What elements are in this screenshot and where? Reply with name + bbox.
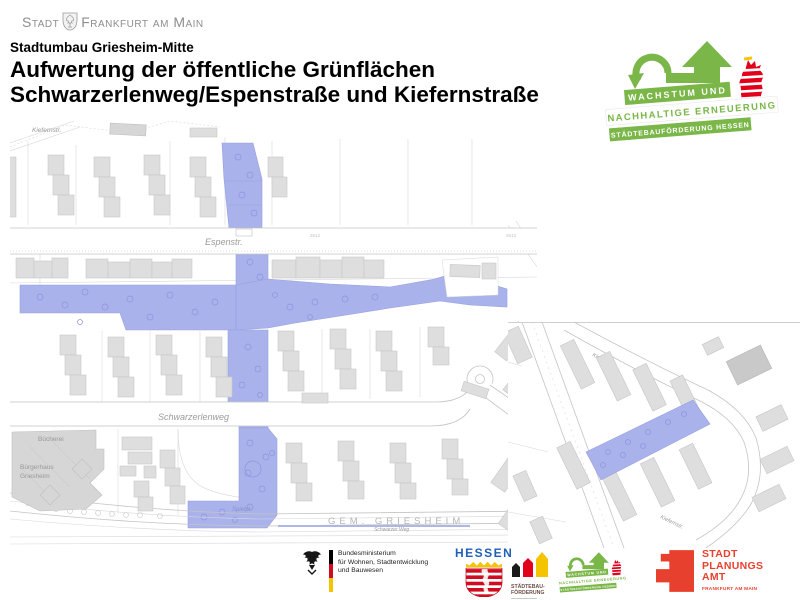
- program-logo-small: WACHSTUM UND NACHHALTIGE ERNEUERUNG STÄD…: [556, 549, 634, 599]
- subtitle: Stadtumbau Griesheim-Mitte: [10, 40, 194, 55]
- buergerhaus-label-1: Bürgerhaus: [20, 464, 54, 471]
- spa-line1: STADT: [702, 549, 763, 561]
- stadtplanungsamt-mark-icon: [656, 549, 694, 593]
- parcel-number-2612: 2612: [310, 233, 321, 238]
- schwarzerlenweg-label: Schwarzerlenweg: [158, 412, 229, 422]
- hessen-lion-icon: [734, 56, 768, 104]
- program-logo-graphic: WACHSTUM UND NACHHALTIGE ERNEUERUNG STÄD…: [600, 33, 795, 145]
- houses-icon: [511, 549, 551, 579]
- title-line2: Schwarzerlenweg/Espenstraße und Kieferns…: [10, 82, 539, 107]
- growth-arrow-icon: [666, 41, 732, 83]
- hessen-coat-of-arms-icon: [463, 561, 505, 597]
- parcel-number-2613: 2613: [506, 233, 517, 238]
- espenstrasse-label: Espenstr.: [205, 237, 243, 247]
- spa-line4: FRANKFURT AM MAIN: [702, 587, 763, 592]
- bund-line2: für Wohnen, Stadtentwicklung: [338, 559, 428, 568]
- espenstrasse-street: Espenstr. 2612 2613: [10, 228, 537, 254]
- schwarzer-weg-label: Schwarzer Weg: [374, 527, 409, 533]
- bund-logo: Bundesministerium für Wohnen, Stadtentwi…: [300, 550, 428, 592]
- main-map: Espenstr. 2612 2613 Kiefernstr. Schwarze…: [10, 117, 537, 547]
- buecherei-label: Bücherei: [38, 436, 64, 443]
- spielplatz-label: Spielpl.: [232, 507, 252, 513]
- city-logo-stadt: Stadt: [22, 14, 59, 30]
- buergerhaus-label-2: Griesheim: [20, 473, 50, 480]
- spa-line3: AMT: [702, 572, 763, 584]
- staedtebaufoerderung-logo: STÄDTEBAU- FÖRDERUNG: [511, 549, 551, 600]
- bund-line1: Bundesministerium: [338, 550, 428, 559]
- bund-text: Bundesministerium für Wohnen, Stadtentwi…: [338, 550, 428, 592]
- stadtplanungsamt-logo: STADT PLANUNGS AMT FRANKFURT AM MAIN: [656, 549, 763, 593]
- german-flag-bar: [329, 550, 333, 592]
- hessen-wordmark: HESSEN: [455, 546, 513, 560]
- program-logo-small-graphic: WACHSTUM UND NACHHALTIGE ERNEUERUNG STÄD…: [556, 549, 634, 594]
- gemarkung-label: GEM. GRIESHEIM: [328, 516, 464, 527]
- slide: Stadt Frankfurt am Main Stadtumbau Gries…: [0, 0, 800, 600]
- frankfurt-city-logo: Stadt Frankfurt am Main: [22, 12, 204, 31]
- buergerhaus-complex: Bücherei Bürgerhaus Griesheim: [12, 430, 104, 511]
- staedtebau-line2: FÖRDERUNG: [511, 590, 551, 596]
- city-logo-frankfurt: Frankfurt am Main: [81, 14, 203, 30]
- stadtplanungsamt-text: STADT PLANUNGS AMT FRANKFURT AM MAIN: [702, 549, 763, 593]
- federal-eagle-icon: [300, 550, 324, 578]
- program-logo: WACHSTUM UND NACHHALTIGE ERNEUERUNG STÄD…: [600, 33, 795, 150]
- bund-line3: und Bauwesen: [338, 567, 428, 576]
- frankfurt-crest-icon: [62, 12, 78, 31]
- title-line1: Aufwertung der öffentliche Grünflächen: [10, 57, 539, 82]
- hessen-logo: HESSEN: [455, 546, 513, 600]
- page-title: Aufwertung der öffentliche Grünflächen S…: [10, 57, 539, 107]
- staedtebau-fineprint-bar: [511, 598, 537, 600]
- kiefernstrasse-label: Kiefernstr.: [32, 127, 62, 134]
- inset-map: Kiefernstr. Kiefernstr.: [508, 322, 800, 548]
